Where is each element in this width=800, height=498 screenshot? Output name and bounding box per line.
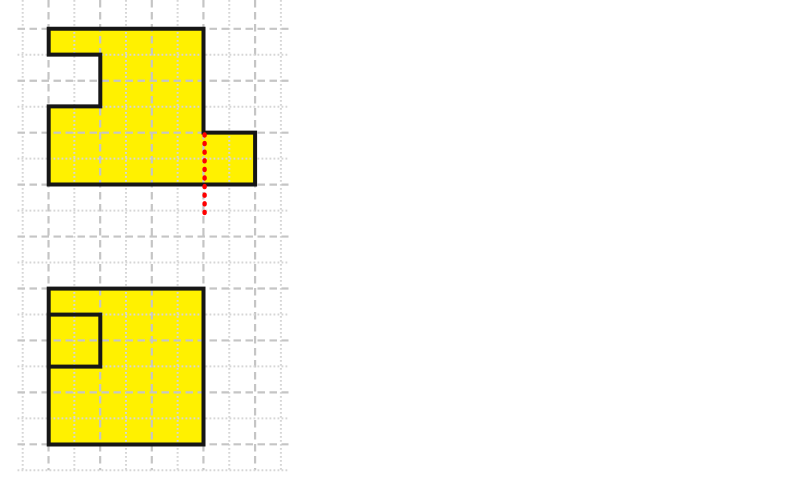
worksheet-page [0,0,800,498]
fold-worksheet-figure [0,0,800,498]
